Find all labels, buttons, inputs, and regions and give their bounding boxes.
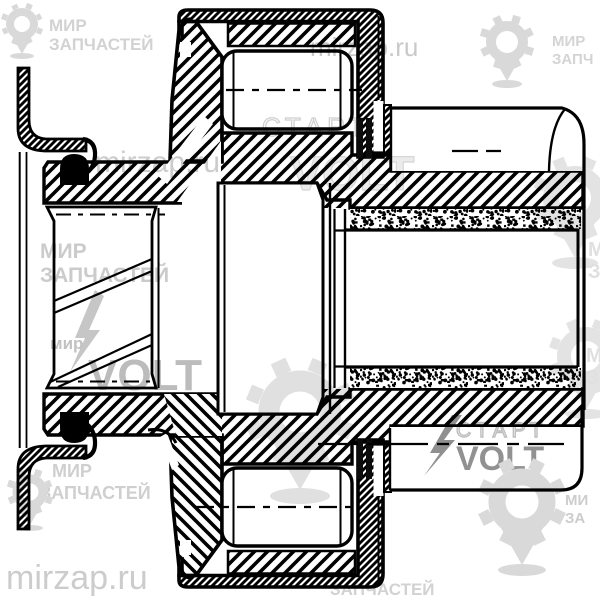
svg-text:МИР: МИР	[52, 461, 92, 481]
svg-text:М: М	[588, 239, 600, 261]
svg-text:mirzap.ru: mirzap.ru	[310, 32, 418, 62]
svg-text:М: М	[586, 345, 600, 367]
svg-text:МИР: МИР	[552, 33, 585, 50]
svg-text:ЗА: ЗА	[565, 510, 585, 527]
svg-text:ЗАПЧАСТЕЙ: ЗАПЧАСТЕЙ	[330, 580, 435, 597]
svg-text:МИР: МИР	[40, 240, 87, 263]
svg-text:mirzap.ru: mirzap.ru	[6, 559, 148, 597]
svg-text:ЗАПЧАСТЕЙ: ЗАПЧАСТЕЙ	[40, 482, 151, 503]
svg-text:МИ: МИ	[565, 492, 588, 509]
svg-text:mirzap.ru: mirzap.ru	[95, 146, 220, 179]
svg-text:VOLT: VOLT	[88, 351, 202, 400]
svg-text:З: З	[586, 367, 599, 389]
svg-text:ЗАПЧАСТЕЙ: ЗАПЧАСТЕЙ	[49, 35, 154, 54]
svg-text:З: З	[588, 261, 600, 283]
svg-text:МИР: МИР	[49, 16, 87, 35]
svg-text:ЗАПЧАСТЕЙ: ЗАПЧАСТЕЙ	[40, 263, 169, 287]
svg-text:ЗАПЧ: ЗАПЧ	[552, 51, 593, 68]
svg-text:VOLT: VOLT	[290, 148, 414, 201]
svg-text:СТАРТ: СТАРТ	[456, 419, 548, 442]
svg-text:СТАРТ: СТАРТ	[262, 112, 369, 142]
svg-text:мир: мир	[50, 334, 83, 353]
